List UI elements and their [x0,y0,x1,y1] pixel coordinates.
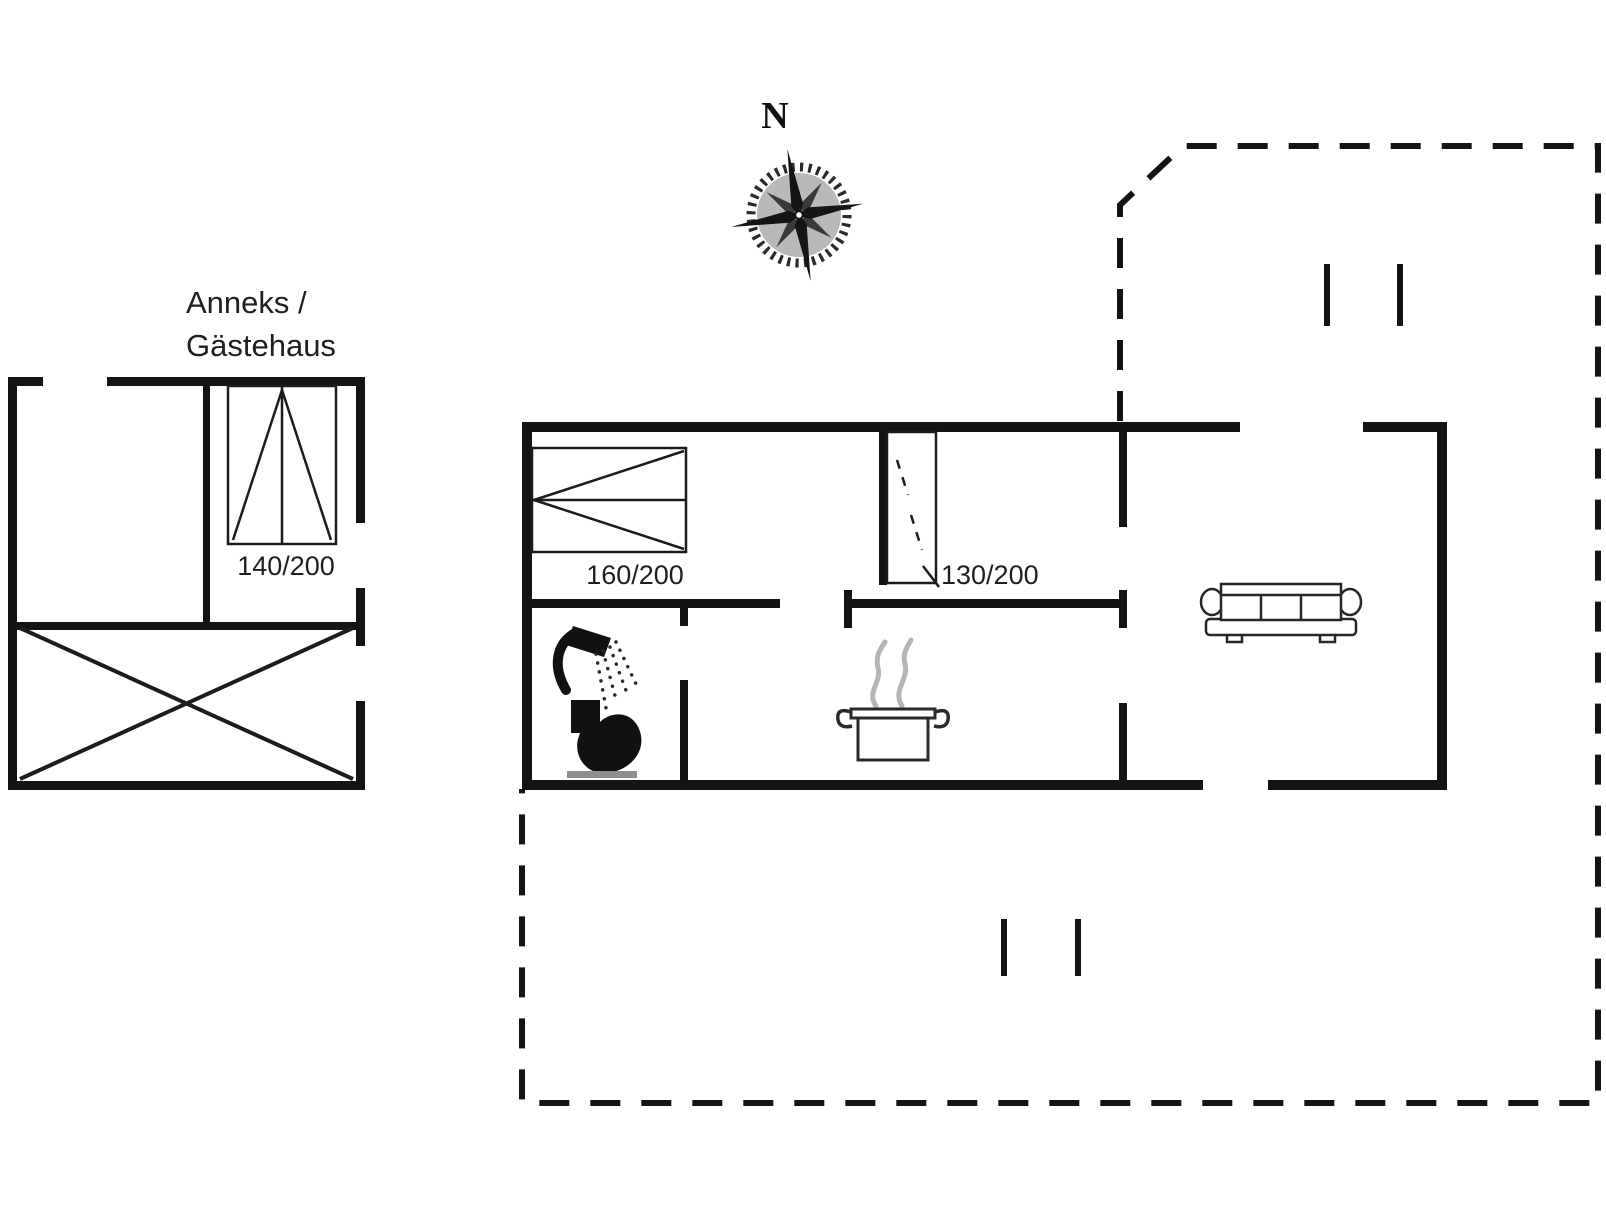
sofa-icon [1201,584,1361,642]
bed-size-label-130: 130/200 [941,560,1039,591]
terrace-step-marks-bottom [1004,919,1078,976]
annex-building [8,377,365,790]
floor-plan: Anneks / Gästehaus N 140/200 160/200 130… [0,0,1606,1205]
floor-plan-canvas [0,0,1606,1205]
shower-icon [558,626,637,708]
double-bed-140-icon [228,386,336,544]
bed-size-label-160: 160/200 [579,560,691,591]
double-bed-160-icon [532,448,686,552]
toilet-icon [567,700,641,778]
compass-rose-icon [719,138,874,293]
steam-icon [873,640,911,706]
single-bed-130-icon [887,432,939,587]
annex-outer-walls [8,377,365,790]
annex-label: Anneks / Gästehaus [186,281,336,367]
cross-marked-area [20,628,353,779]
terrace-step-marks-top [1327,264,1400,326]
north-label: N [752,94,798,138]
cooking-pot-icon [838,640,948,760]
main-building [522,422,1447,790]
annex-label-line2: Gästehaus [186,324,336,367]
annex-label-line1: Anneks / [186,281,336,324]
bed-size-label-140: 140/200 [230,551,342,582]
annex-interior-walls [17,386,356,630]
